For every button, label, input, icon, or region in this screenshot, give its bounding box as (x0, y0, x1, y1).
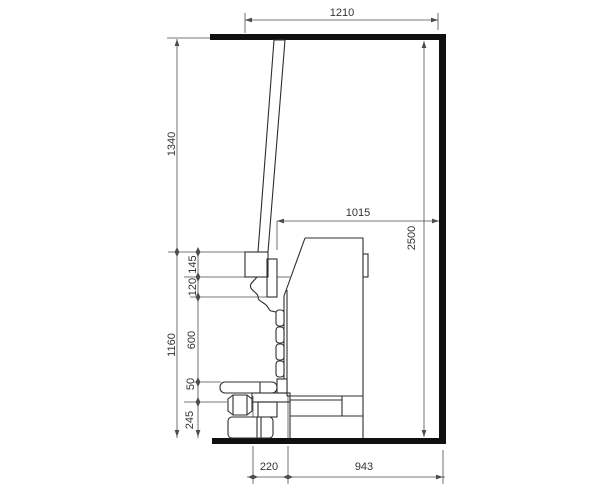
dim-label-1015: 1015 (346, 207, 370, 219)
ceiling-slab (210, 34, 446, 40)
right-wall (439, 34, 446, 444)
casting-profile-curve (250, 277, 276, 312)
elevation-drawing: 1210 1015 2500 1340 1160 145 120 600 50 (0, 0, 600, 491)
dim-label-1160: 1160 (166, 333, 178, 357)
dim-left-outer: 1340 1160 (166, 39, 179, 438)
dim-label-50: 50 (185, 378, 197, 390)
jack-lower-nut (228, 417, 273, 438)
dim-label-2500: 2500 (406, 226, 418, 250)
jack-hatched-block (258, 402, 277, 417)
jack-upper-nut (228, 395, 252, 415)
extension-lines (167, 13, 443, 484)
dim-bottom: 220 943 (247, 461, 445, 479)
body-side-boss (363, 254, 368, 277)
dim-label-1210: 1210 (330, 7, 354, 19)
dim-label-120: 120 (187, 278, 199, 296)
dim-label-245: 245 (184, 411, 196, 429)
dim-label-220: 220 (260, 461, 278, 473)
dim-overall-height: 2500 (406, 41, 426, 437)
floor-slab (212, 438, 446, 444)
bellows-cover (276, 310, 284, 377)
head-clamp-block (245, 252, 268, 277)
dim-label-145: 145 (187, 255, 199, 273)
table-end-block (277, 379, 287, 393)
machine-base (287, 396, 363, 438)
dim-label-600: 600 (186, 331, 198, 349)
body-top-right-edge (305, 238, 363, 438)
table-bar (220, 382, 277, 393)
base-plate-hatched (252, 393, 290, 402)
spindle-head-clamp (245, 252, 277, 297)
dim-label-943: 943 (355, 461, 373, 473)
drawing-canvas: 1210 1015 2500 1340 1160 145 120 600 50 (0, 0, 600, 491)
dim-top-span: 1210 (245, 7, 438, 22)
body-slant-edge (284, 238, 305, 296)
dim-left-chain: 145 120 600 50 245 (184, 247, 200, 438)
dim-mid-span: 1015 (277, 207, 439, 223)
dim-label-1340: 1340 (166, 132, 178, 156)
jack-assembly (228, 395, 277, 438)
